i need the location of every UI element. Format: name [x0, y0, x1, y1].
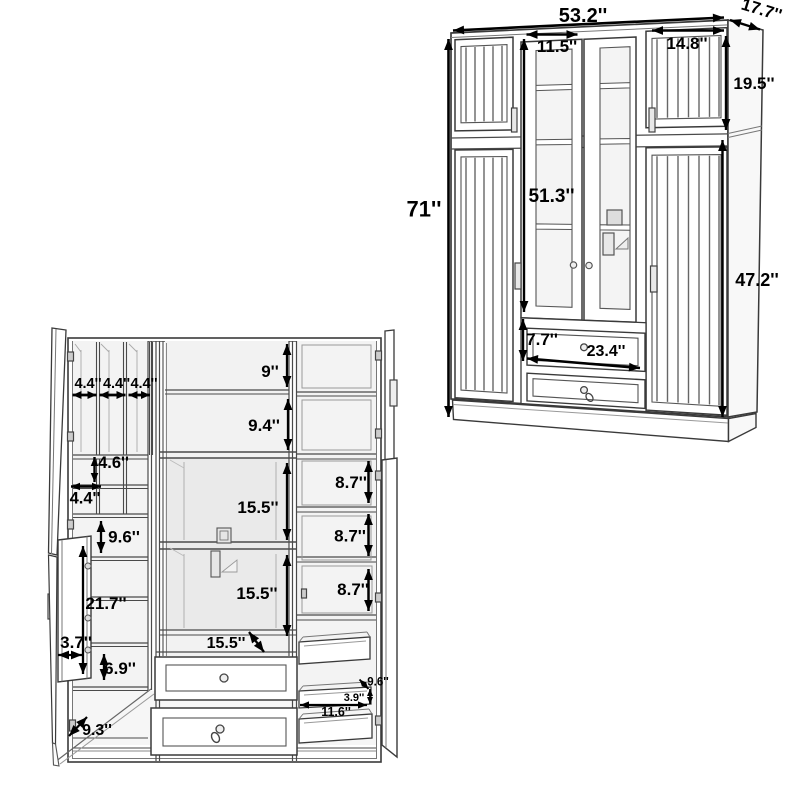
- svg-text:14.8'': 14.8'': [666, 34, 707, 53]
- svg-text:11.5'': 11.5'': [537, 37, 577, 56]
- svg-text:71'': 71'': [407, 197, 442, 222]
- svg-text:51.3'': 51.3'': [528, 186, 574, 207]
- svg-text:4.4'': 4.4'': [70, 490, 101, 508]
- svg-text:4.4'': 4.4'': [74, 376, 101, 392]
- svg-text:8.7'': 8.7'': [337, 580, 369, 599]
- svg-text:23.4'': 23.4'': [587, 343, 626, 360]
- svg-text:4.4'': 4.4'': [103, 376, 130, 392]
- svg-text:4.4'': 4.4'': [130, 376, 157, 392]
- svg-text:15.5'': 15.5'': [236, 584, 277, 603]
- svg-text:15.5'': 15.5'': [237, 498, 278, 517]
- svg-text:53.2'': 53.2'': [559, 5, 607, 27]
- svg-text:15.5'': 15.5'': [207, 635, 246, 652]
- svg-text:7.7'': 7.7'': [526, 330, 558, 349]
- svg-text:9.6'': 9.6'': [367, 677, 389, 689]
- svg-text:6.9'': 6.9'': [104, 659, 136, 678]
- svg-text:9'': 9'': [261, 362, 279, 381]
- svg-text:11.6'': 11.6'': [321, 705, 351, 719]
- svg-text:19.5'': 19.5'': [733, 74, 774, 93]
- svg-text:3.9'': 3.9'': [344, 692, 365, 704]
- svg-text:8.7'': 8.7'': [335, 473, 367, 492]
- svg-text:9.3'': 9.3'': [82, 722, 112, 739]
- svg-text:9.4'': 9.4'': [248, 416, 280, 435]
- svg-text:9.6'': 9.6'': [108, 528, 140, 547]
- svg-text:8.7'': 8.7'': [334, 527, 366, 546]
- svg-text:4.6'': 4.6'': [98, 454, 129, 472]
- svg-text:47.2'': 47.2'': [735, 270, 779, 290]
- svg-text:3.7'': 3.7'': [60, 633, 92, 652]
- svg-text:21.7'': 21.7'': [85, 594, 126, 613]
